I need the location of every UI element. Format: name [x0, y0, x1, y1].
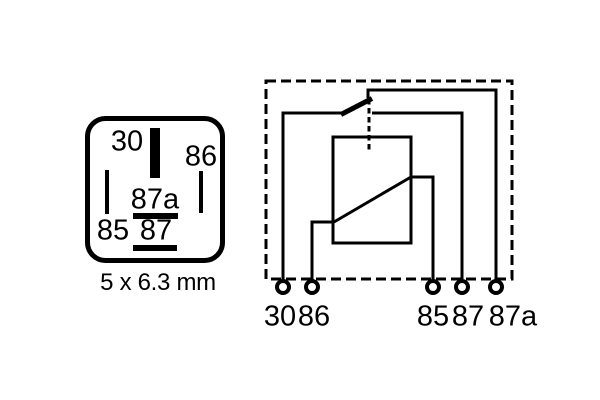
pinout-label-87: 87: [140, 217, 172, 246]
pinout-label-87a: 87a: [131, 186, 179, 215]
pinout-size-label: 5 x 6.3 mm: [100, 271, 216, 295]
terminal-label-30: 30: [264, 303, 296, 332]
terminal-label-87a: 87a: [489, 303, 537, 332]
diagram-artwork: [0, 0, 600, 400]
terminal-85-circle: [427, 281, 439, 293]
terminal-label-86: 86: [298, 303, 330, 332]
switch-blade: [341, 99, 372, 115]
terminal-86-circle: [306, 281, 318, 293]
coil-box: [333, 137, 411, 243]
terminal-label-85: 85: [417, 303, 449, 332]
wire-terminal-85: [411, 177, 433, 281]
wire-terminal-86: [312, 222, 334, 281]
terminal-87a-circle: [490, 281, 502, 293]
terminal-label-87: 87: [452, 303, 484, 332]
pinout-label-85: 85: [97, 217, 129, 246]
terminal-87-circle: [456, 281, 468, 293]
pinout-label-86: 86: [185, 143, 217, 172]
pin-30-blade: [150, 128, 160, 178]
relay-diagram-canvas: 30 86 85 87a 87 5 x 6.3 mm 30 86 85 87 8…: [0, 0, 600, 400]
pin-85-blade: [105, 170, 109, 214]
pin-86-blade: [199, 171, 203, 213]
circuit-figure: [266, 81, 512, 293]
terminal-30-circle: [277, 281, 289, 293]
pinout-label-30: 30: [111, 128, 143, 157]
